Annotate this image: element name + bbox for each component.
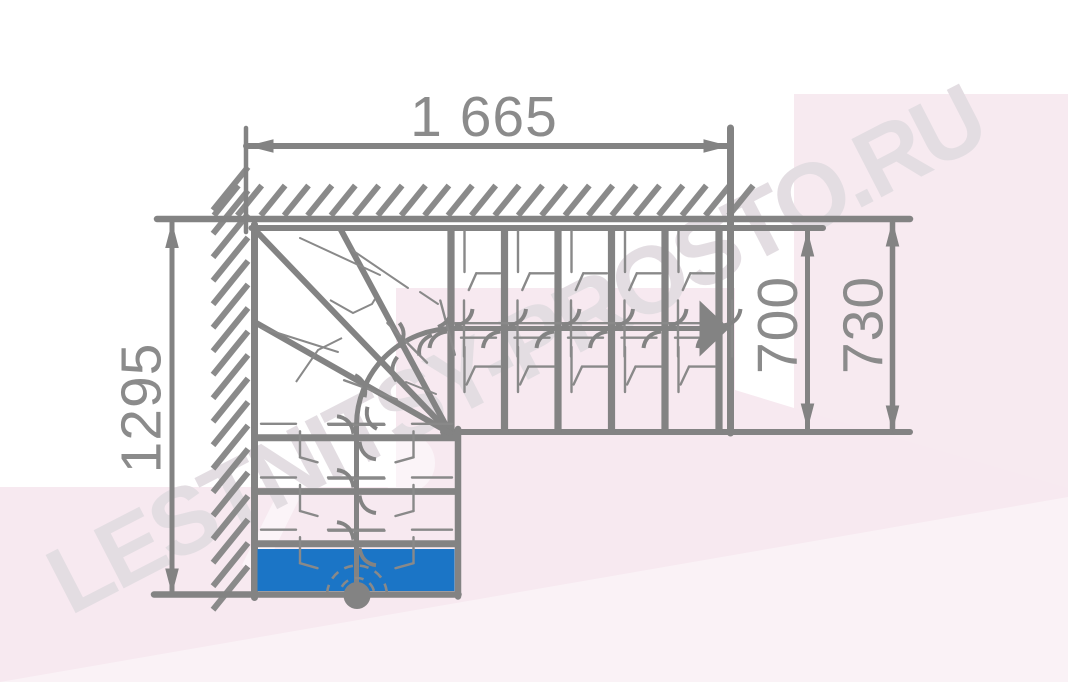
- svg-text:730: 730: [832, 276, 896, 374]
- svg-text:1 665: 1 665: [410, 85, 558, 149]
- svg-text:700: 700: [746, 276, 810, 374]
- svg-text:1295: 1295: [110, 343, 174, 474]
